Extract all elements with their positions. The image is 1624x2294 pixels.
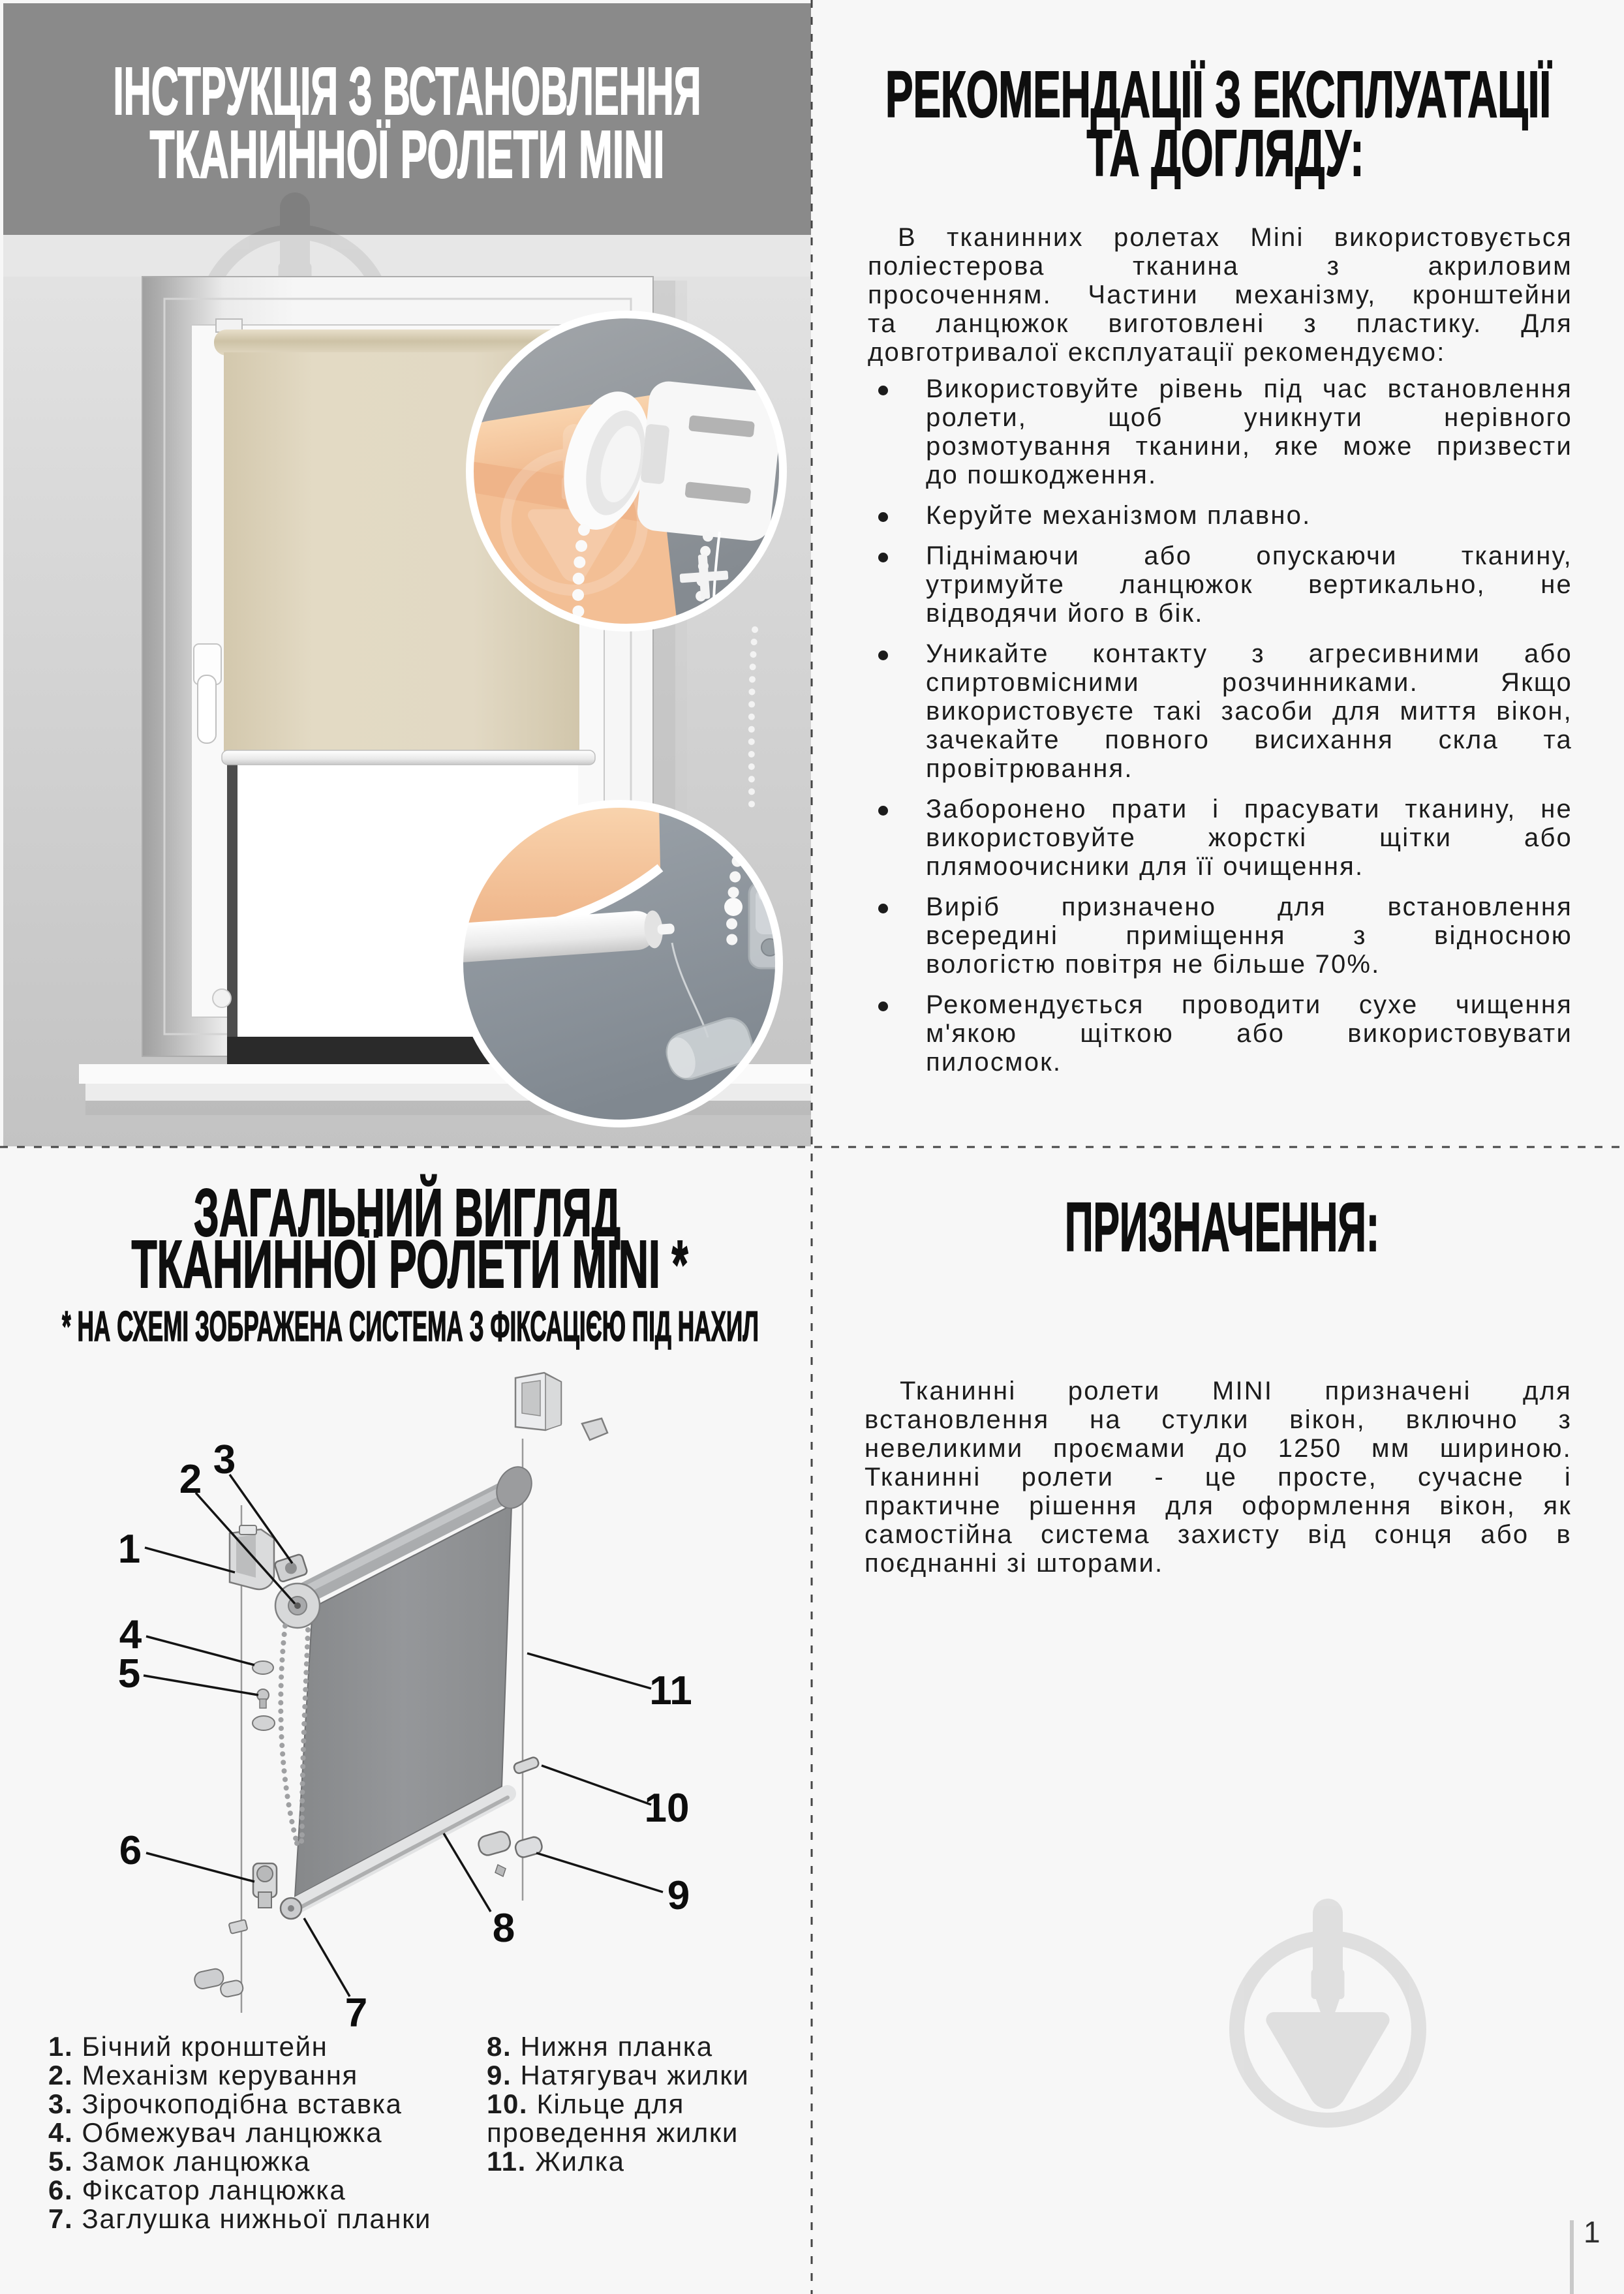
svg-text:5: 5 <box>118 1651 140 1696</box>
svg-text:8: 8 <box>493 1906 515 1951</box>
svg-text:10: 10 <box>645 1786 690 1831</box>
svg-text:9: 9 <box>667 1873 690 1918</box>
svg-text:ТКАНИННОЇ РОЛЕТИ MINI *: ТКАНИННОЇ РОЛЕТИ MINI * <box>132 1227 688 1302</box>
svg-text:* НА СХЕМІ ЗОБРАЖЕНА СИСТЕМА З: * НА СХЕМІ ЗОБРАЖЕНА СИСТЕМА З ФІКСАЦІЄЮ… <box>62 1302 759 1350</box>
svg-text:2: 2 <box>179 1457 202 1502</box>
svg-text:1: 1 <box>1584 2215 1601 2249</box>
svg-text:ТА ДОГЛЯДУ:: ТА ДОГЛЯДУ: <box>1087 117 1364 190</box>
svg-text:6: 6 <box>119 1828 142 1873</box>
svg-text:11: 11 <box>649 1668 692 1713</box>
svg-text:1: 1 <box>118 1527 140 1572</box>
svg-text:4: 4 <box>119 1612 142 1657</box>
svg-text:ПРИЗНАЧЕННЯ:: ПРИЗНАЧЕННЯ: <box>1065 1189 1379 1266</box>
svg-text:3: 3 <box>213 1437 236 1482</box>
svg-text:ТКАНИННОЇ РОЛЕТИ MINI: ТКАНИННОЇ РОЛЕТИ MINI <box>150 117 665 192</box>
svg-text:7: 7 <box>345 1991 367 2036</box>
